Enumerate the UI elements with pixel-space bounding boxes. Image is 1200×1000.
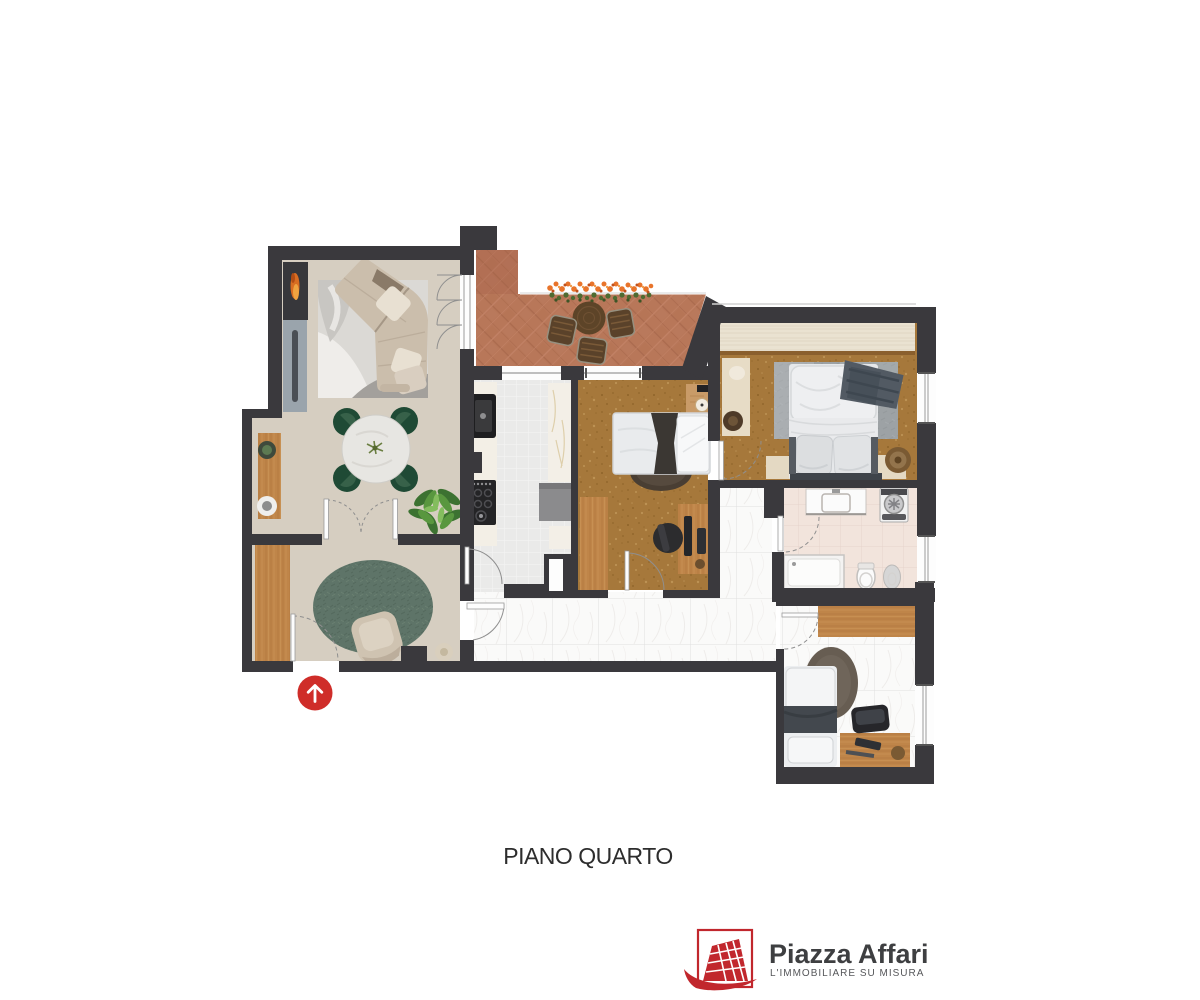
svg-text:L'IMMOBILIARE SU MISURA: L'IMMOBILIARE SU MISURA bbox=[770, 968, 924, 979]
svg-text:PIANO QUARTO: PIANO QUARTO bbox=[503, 843, 673, 869]
svg-text:Piazza Affari: Piazza Affari bbox=[769, 939, 929, 969]
